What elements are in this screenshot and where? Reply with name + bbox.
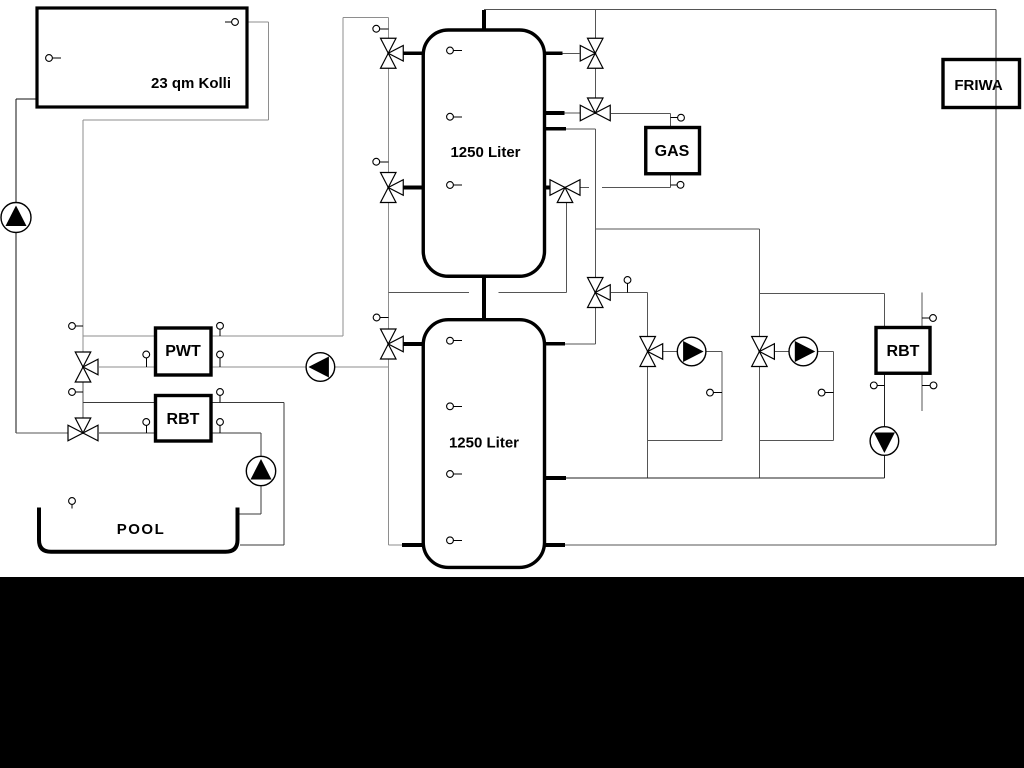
svg-text:GAS: GAS: [655, 143, 690, 160]
svg-text:RBT: RBT: [887, 343, 920, 360]
svg-text:1250 Liter: 1250 Liter: [450, 144, 520, 161]
svg-text:23 qm Kolli: 23 qm Kolli: [151, 75, 231, 92]
svg-text:PWT: PWT: [165, 343, 201, 360]
svg-text:RBT: RBT: [167, 411, 200, 428]
svg-text:POOL: POOL: [117, 521, 166, 538]
svg-text:1250 Liter: 1250 Liter: [449, 435, 519, 452]
